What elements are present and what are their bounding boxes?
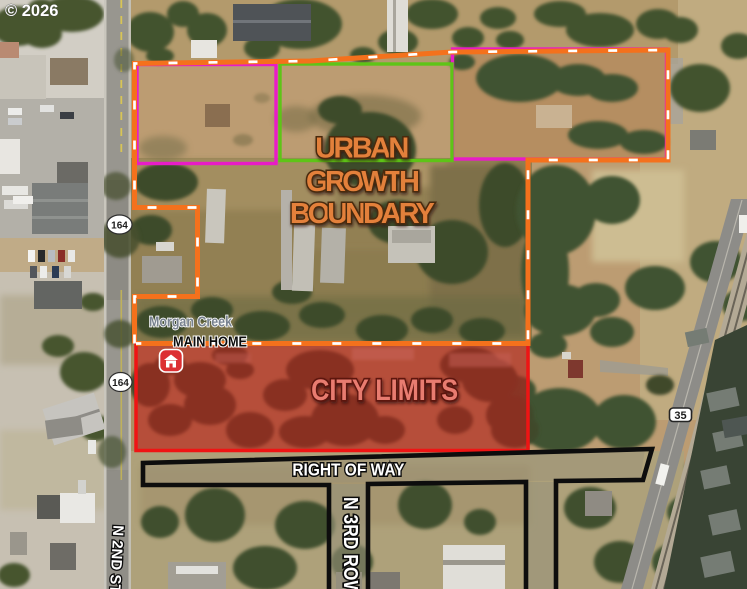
svg-text:RIGHT OF WAY: RIGHT OF WAY xyxy=(292,459,404,479)
svg-text:URBAN: URBAN xyxy=(315,133,409,165)
svg-text:164: 164 xyxy=(111,220,128,231)
svg-text:Morgan Creek: Morgan Creek xyxy=(149,314,233,331)
svg-text:MAIN HOME: MAIN HOME xyxy=(173,335,247,351)
svg-text:35: 35 xyxy=(674,410,686,422)
svg-text:© 2026: © 2026 xyxy=(5,2,58,20)
svg-text:164: 164 xyxy=(112,378,129,389)
svg-text:N 3RD ROW: N 3RD ROW xyxy=(339,497,361,589)
svg-text:GROWTH: GROWTH xyxy=(306,166,420,198)
svg-text:CITY LIMITS: CITY LIMITS xyxy=(311,374,458,407)
svg-text:N 2ND ST: N 2ND ST xyxy=(106,525,127,589)
svg-text:BOUNDARY: BOUNDARY xyxy=(290,198,435,230)
